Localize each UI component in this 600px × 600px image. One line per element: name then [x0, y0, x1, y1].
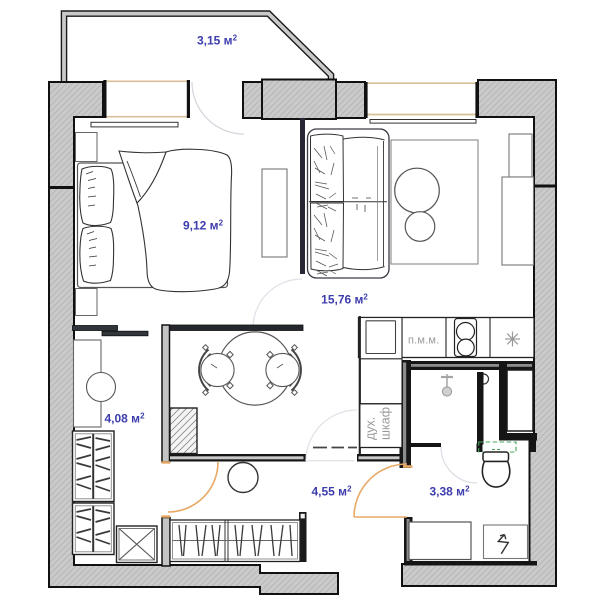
svg-text:3,38 м2: 3,38 м2 [429, 485, 470, 499]
svg-text:4,55 м2: 4,55 м2 [311, 485, 352, 499]
svg-text:15,76 м2: 15,76 м2 [321, 293, 368, 307]
svg-text:9,12 м2: 9,12 м2 [183, 219, 224, 233]
svg-text:шкаф: шкаф [379, 407, 393, 440]
svg-text:дух.: дух. [364, 417, 378, 440]
svg-text:п.м.м.: п.м.м. [408, 335, 439, 347]
svg-text:3,15 м2: 3,15 м2 [197, 34, 238, 48]
svg-text:4,08 м2: 4,08 м2 [104, 412, 145, 426]
